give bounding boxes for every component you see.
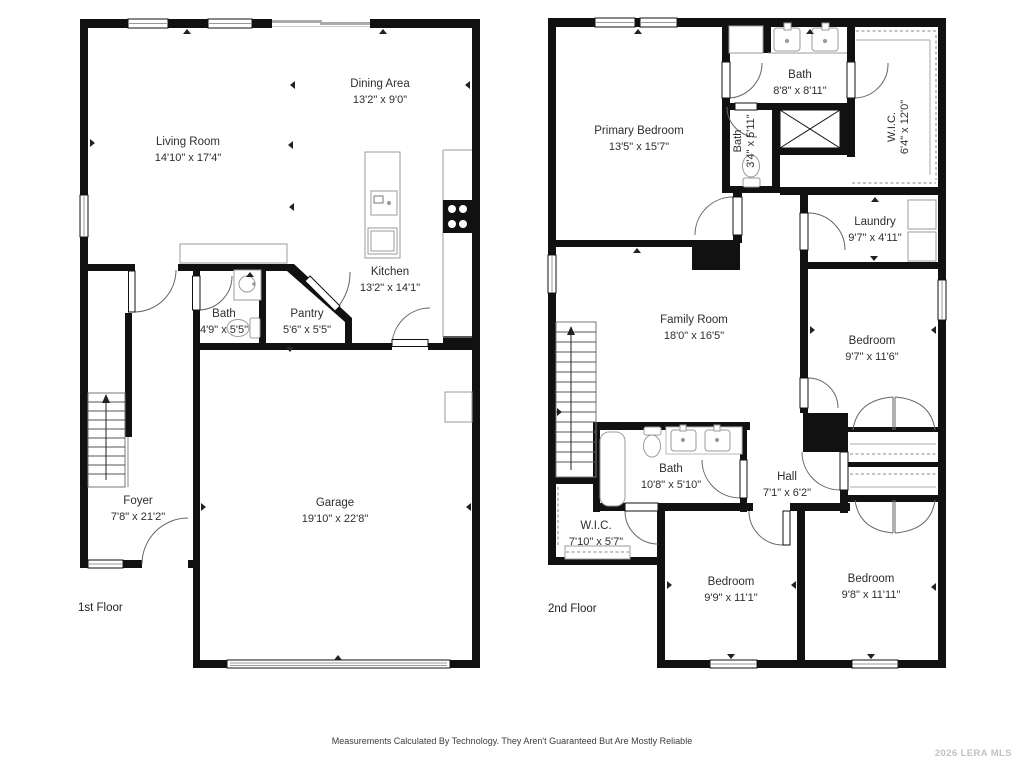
room-dims: 9'7" x 11'6" bbox=[845, 349, 898, 365]
room-label-wic-top-dims: 6'4" x 12'0" bbox=[899, 100, 911, 154]
room-dims: 5'6" x 5'5" bbox=[283, 322, 331, 338]
room-name: Bath bbox=[200, 306, 248, 322]
room-name: W.I.C. bbox=[569, 518, 623, 534]
room-name: Family Room bbox=[660, 312, 728, 328]
disclaimer-text: Measurements Calculated By Technology. T… bbox=[0, 736, 1024, 746]
room-label-bedroom-bottom-right: Bedroom 9'8" x 11'11" bbox=[842, 571, 901, 603]
floor-plan-canvas: Living Room 14'10" x 17'4" Dining Area 1… bbox=[0, 0, 1024, 768]
room-label-small-bath-name: Bath bbox=[732, 130, 744, 153]
room-dims: 9'9" x 11'1" bbox=[704, 590, 757, 606]
room-dims: 8'8" x 8'11" bbox=[773, 83, 826, 99]
second-floor-stairs bbox=[556, 322, 596, 477]
room-dims: 19'10" x 22'8" bbox=[302, 511, 368, 527]
room-name: Primary Bedroom bbox=[594, 123, 683, 139]
room-name: Bedroom bbox=[704, 574, 757, 590]
room-name: Pantry bbox=[283, 306, 331, 322]
room-name: Bedroom bbox=[842, 571, 901, 587]
room-label-primary-bath: Bath 8'8" x 8'11" bbox=[773, 67, 826, 99]
room-label-pantry: Pantry 5'6" x 5'5" bbox=[283, 306, 331, 338]
room-label-primary-bedroom: Primary Bedroom 13'5" x 15'7" bbox=[594, 123, 683, 155]
first-floor-stairs bbox=[88, 393, 128, 487]
room-dims: 18'0" x 16'5" bbox=[660, 328, 728, 344]
room-label-foyer: Foyer 7'8" x 21'2" bbox=[111, 493, 165, 525]
room-label-bedroom-bottom-left: Bedroom 9'9" x 11'1" bbox=[704, 574, 757, 606]
room-dims: 9'7" x 4'11" bbox=[848, 230, 901, 246]
room-label-family-room: Family Room 18'0" x 16'5" bbox=[660, 312, 728, 344]
room-dims: 13'2" x 9'0" bbox=[350, 92, 409, 108]
room-dims: 7'8" x 21'2" bbox=[111, 509, 165, 525]
room-name: Bedroom bbox=[845, 333, 898, 349]
first-floor-doors bbox=[129, 270, 431, 564]
room-dims: 13'5" x 15'7" bbox=[594, 139, 683, 155]
floor-1-label: 1st Floor bbox=[78, 602, 123, 614]
room-dims: 4'9" x 5'5" bbox=[200, 322, 248, 338]
room-label-wic-bottom: W.I.C. 7'10" x 5'7" bbox=[569, 518, 623, 550]
room-name: Kitchen bbox=[360, 264, 420, 280]
room-label-dining-area: Dining Area 13'2" x 9'0" bbox=[350, 76, 409, 108]
room-name: Garage bbox=[302, 495, 368, 511]
room-name: Laundry bbox=[848, 214, 901, 230]
room-label-hall: Hall 7'1" x 6'2" bbox=[763, 469, 811, 501]
room-label-living-room: Living Room 14'10" x 17'4" bbox=[155, 134, 221, 166]
floor-2-label: 2nd Floor bbox=[548, 603, 597, 615]
room-name: Dining Area bbox=[350, 76, 409, 92]
room-name: Bath bbox=[773, 67, 826, 83]
room-label-hall-bath: Bath 10'8" x 5'10" bbox=[641, 461, 701, 493]
room-label-kitchen: Kitchen 13'2" x 14'1" bbox=[360, 264, 420, 296]
room-label-bath-1: Bath 4'9" x 5'5" bbox=[200, 306, 248, 338]
room-name: Foyer bbox=[111, 493, 165, 509]
room-dims: 7'10" x 5'7" bbox=[569, 534, 623, 550]
room-dims: 10'8" x 5'10" bbox=[641, 477, 701, 493]
room-label-laundry: Laundry 9'7" x 4'11" bbox=[848, 214, 901, 246]
room-name: Hall bbox=[763, 469, 811, 485]
room-dims: 13'2" x 14'1" bbox=[360, 280, 420, 296]
room-dims: 14'10" x 17'4" bbox=[155, 150, 221, 166]
first-floor-fixtures bbox=[180, 150, 472, 422]
room-dims: 9'8" x 11'11" bbox=[842, 587, 901, 603]
room-label-small-bath-dims: 3'4" x 5'11" bbox=[745, 114, 757, 167]
room-name: Bath bbox=[641, 461, 701, 477]
room-name: Living Room bbox=[155, 134, 221, 150]
room-dims: 7'1" x 6'2" bbox=[763, 485, 811, 501]
room-label-wic-top-name: W.I.C. bbox=[886, 112, 898, 142]
room-label-bedroom-right: Bedroom 9'7" x 11'6" bbox=[845, 333, 898, 365]
room-label-garage: Garage 19'10" x 22'8" bbox=[302, 495, 368, 527]
floor-plan-drawing bbox=[0, 0, 1024, 768]
watermark-text: 2026 LERA MLS bbox=[935, 748, 1012, 759]
